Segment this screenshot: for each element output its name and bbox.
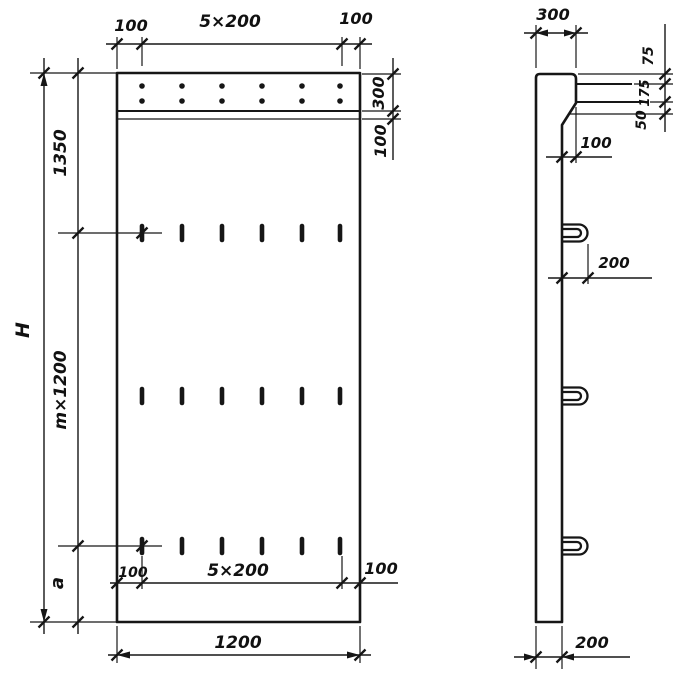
slot-row-2 bbox=[142, 389, 340, 403]
side-bottom-dimension: 200 bbox=[514, 626, 630, 669]
band-dots bbox=[139, 83, 343, 104]
dim-module-height: m×1200 bbox=[51, 350, 71, 429]
dim-bottom-left: 100 bbox=[118, 565, 147, 581]
loop-1 bbox=[562, 225, 588, 242]
dim-side-bottom-width: 200 bbox=[575, 633, 608, 652]
loop-2 bbox=[562, 388, 588, 405]
dim-rail-gap: 175 bbox=[638, 79, 653, 106]
slot-row-3 bbox=[142, 539, 340, 553]
front-left-dimensions: 1350 H m×1200 a bbox=[12, 58, 162, 634]
side-top-dimension: 300 bbox=[524, 5, 588, 68]
side-profile bbox=[536, 74, 576, 622]
dim-band-height: 300 bbox=[369, 76, 388, 109]
side-ledge-dimension: 100 bbox=[546, 107, 612, 163]
dim-top-mid: 5×200 bbox=[199, 12, 261, 32]
front-bottom-inner-dimension: 100 5×200 100 bbox=[110, 556, 398, 589]
side-loop-dimension: 200 bbox=[548, 244, 652, 284]
dim-top-left: 100 bbox=[114, 16, 147, 35]
dim-upper-height: 1350 bbox=[51, 129, 71, 176]
dim-bottom-mid: 5×200 bbox=[207, 561, 269, 581]
front-top-dimension: 100 5×200 100 bbox=[106, 9, 373, 69]
front-right-dimension: 300 100 bbox=[362, 58, 401, 160]
dim-total-height: H bbox=[12, 322, 34, 338]
dim-ledge-offset: 100 bbox=[580, 134, 611, 152]
dim-loop-length: 200 bbox=[598, 254, 629, 272]
drawing-sheet: 100 5×200 100 300 100 1350 bbox=[0, 0, 700, 700]
dim-bottom-right: 100 bbox=[364, 559, 397, 578]
dim-top-right: 100 bbox=[339, 9, 372, 28]
panel-technical-drawing: 100 5×200 100 300 100 1350 bbox=[0, 0, 700, 700]
dim-bottom-margin: a bbox=[47, 577, 68, 589]
loop-3 bbox=[562, 538, 588, 555]
dim-rail-top-offset: 75 bbox=[641, 46, 657, 66]
side-right-dimension: 75 175 50 bbox=[570, 24, 673, 132]
side-view-outline bbox=[536, 74, 648, 622]
dim-side-top-width: 300 bbox=[536, 5, 569, 24]
front-view-outline bbox=[117, 73, 360, 622]
slot-row-1 bbox=[142, 226, 340, 240]
dim-chamfer-height: 50 bbox=[634, 110, 650, 130]
panel-face bbox=[117, 73, 360, 622]
dim-overall-width: 1200 bbox=[214, 633, 261, 653]
front-overall-width-dimension: 1200 bbox=[108, 626, 371, 663]
dim-strip-height: 100 bbox=[371, 124, 390, 157]
